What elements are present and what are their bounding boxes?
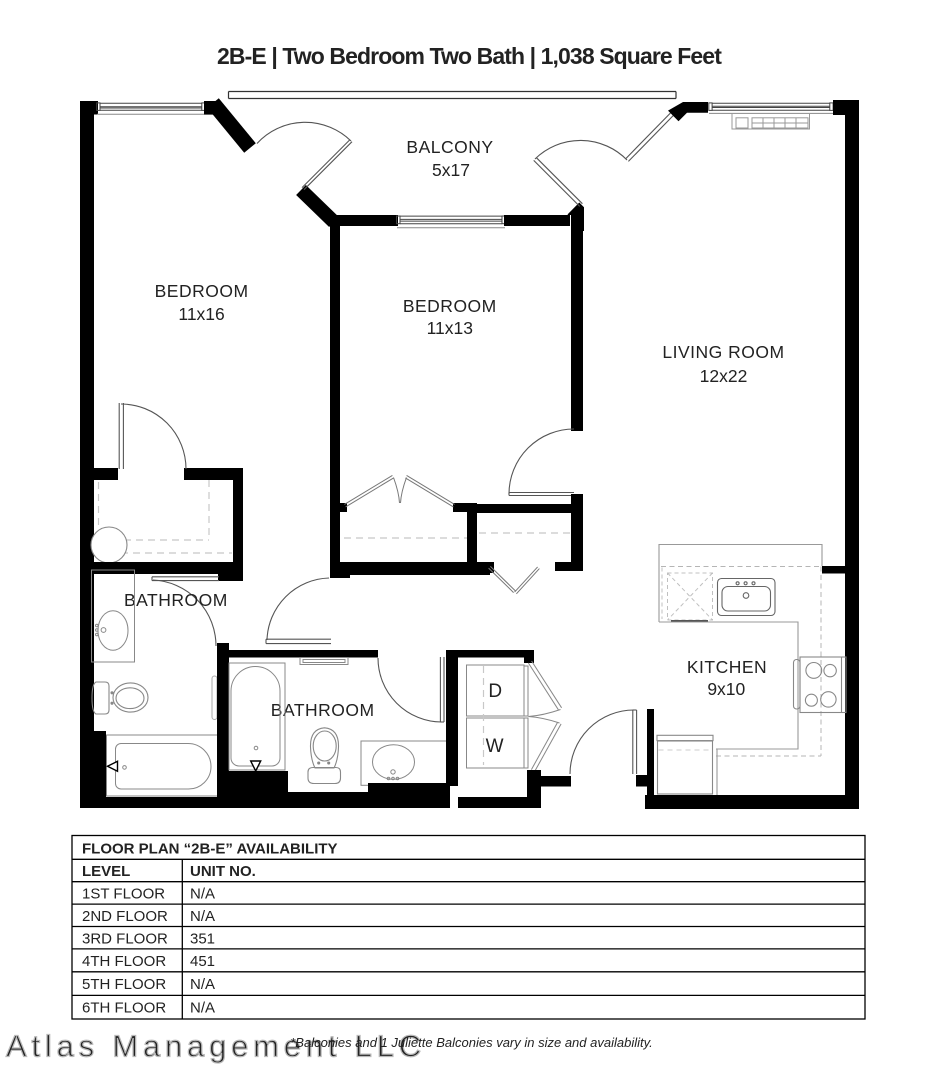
- svg-text:N/A: N/A: [190, 886, 215, 903]
- svg-text:*Balconies and 1 Juliette Balc: *Balconies and 1 Juliette Balconies vary…: [290, 1035, 653, 1050]
- svg-text:W: W: [486, 736, 504, 757]
- svg-text:LIVING ROOM: LIVING ROOM: [662, 342, 784, 362]
- svg-text:451: 451: [190, 953, 215, 970]
- svg-text:2ND FLOOR: 2ND FLOOR: [82, 908, 168, 925]
- svg-text:11x16: 11x16: [178, 304, 224, 324]
- svg-text:9x10: 9x10: [707, 679, 745, 699]
- svg-text:5x17: 5x17: [432, 160, 470, 180]
- svg-text:N/A: N/A: [190, 976, 215, 993]
- svg-text:351: 351: [190, 931, 215, 948]
- svg-text:BEDROOM: BEDROOM: [155, 281, 249, 301]
- svg-text:D: D: [488, 681, 502, 702]
- svg-text:1ST FLOOR: 1ST FLOOR: [82, 886, 165, 903]
- svg-text:BATHROOM: BATHROOM: [124, 590, 228, 610]
- svg-text:BATHROOM: BATHROOM: [271, 700, 375, 720]
- svg-text:N/A: N/A: [190, 1000, 215, 1017]
- svg-text:LEVEL: LEVEL: [82, 863, 130, 880]
- svg-text:BEDROOM: BEDROOM: [403, 296, 497, 316]
- svg-text:2B-E | Two Bedroom Two Bath |: 2B-E | Two Bedroom Two Bath | 1,038 Squa…: [217, 43, 722, 69]
- svg-text:3RD FLOOR: 3RD FLOOR: [82, 931, 168, 948]
- svg-text:UNIT NO.: UNIT NO.: [190, 863, 256, 880]
- svg-text:N/A: N/A: [190, 908, 215, 925]
- svg-text:6TH FLOOR: 6TH FLOOR: [82, 1000, 166, 1017]
- svg-text:12x22: 12x22: [700, 366, 748, 386]
- svg-text:KITCHEN: KITCHEN: [687, 657, 767, 677]
- svg-text:11x13: 11x13: [427, 318, 473, 338]
- svg-text:FLOOR PLAN “2B-E” AVAILABILITY: FLOOR PLAN “2B-E” AVAILABILITY: [82, 841, 338, 858]
- svg-text:4TH FLOOR: 4TH FLOOR: [82, 953, 166, 970]
- svg-text:BALCONY: BALCONY: [406, 137, 493, 157]
- svg-text:5TH FLOOR: 5TH FLOOR: [82, 976, 166, 993]
